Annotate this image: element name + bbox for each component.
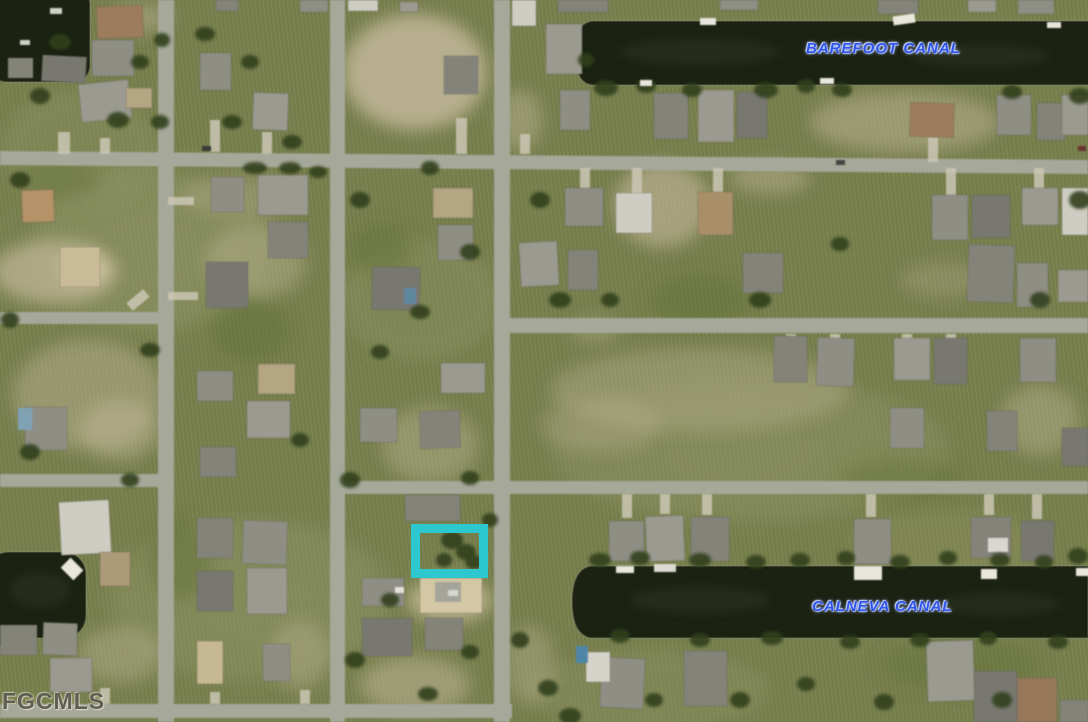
road-horizontal-right-lower <box>333 481 1088 494</box>
road-vertical-2 <box>330 0 345 722</box>
aerial-map: BAREFOOT CANAL CALNEVA CANAL FGCMLS <box>0 0 1088 722</box>
road-vertical-3 <box>494 0 510 722</box>
calneva-canal-label: CALNEVA CANAL <box>812 598 953 615</box>
highlighted-lot-outline <box>411 524 488 578</box>
barefoot-canal-label: BAREFOOT CANAL <box>806 40 961 57</box>
road-horizontal-right-upper <box>496 318 1088 333</box>
road-horizontal-left-lower <box>0 474 172 487</box>
road-vertical-1 <box>158 0 174 722</box>
road-horizontal-left-mid <box>0 312 166 324</box>
fgcmls-watermark: FGCMLS <box>2 688 105 715</box>
